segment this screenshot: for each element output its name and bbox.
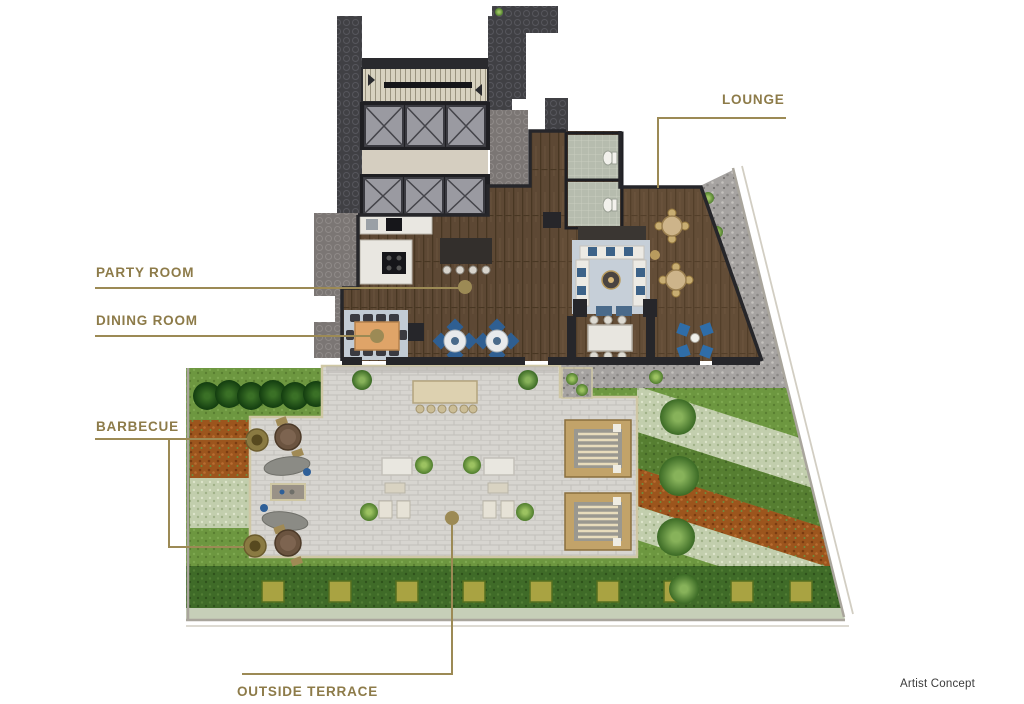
elevator-bank — [360, 102, 490, 150]
toilet — [603, 151, 617, 165]
label-outside-terrace: OUTSIDE TERRACE — [237, 684, 378, 699]
flower-bed — [190, 420, 250, 478]
outside-terrace-callout-dot — [445, 511, 459, 525]
label-party-room: PARTY ROOM — [96, 265, 194, 280]
washrooms — [566, 133, 622, 228]
entry-paving — [490, 110, 528, 186]
cabana — [565, 493, 631, 550]
label-lounge: LOUNGE — [722, 92, 785, 107]
toilet — [603, 198, 617, 212]
banquet-table — [413, 381, 477, 413]
elevator-bank — [360, 174, 490, 218]
core-plant — [495, 8, 503, 16]
terrace-tree — [352, 370, 372, 390]
cabana — [565, 420, 631, 477]
floorplan-canvas: LOUNGE PARTY ROOM DINING ROOM BARBECUE O… — [0, 0, 1024, 704]
kitchen-island — [440, 238, 492, 264]
media-console — [578, 226, 646, 240]
planter-box — [562, 368, 592, 398]
bottom-path — [186, 608, 848, 620]
label-dining-room: DINING ROOM — [96, 313, 198, 328]
bbq-table — [271, 484, 305, 500]
party-room-callout-dot — [458, 280, 472, 294]
gravel-walk — [560, 365, 787, 388]
elevator-lobby — [362, 150, 488, 174]
floorplan-rendering — [0, 0, 1024, 704]
artist-concept-note: Artist Concept — [900, 678, 975, 690]
sage-bed — [190, 478, 250, 528]
terrace-tree — [518, 370, 538, 390]
dining-room-callout-dot — [370, 329, 384, 343]
label-barbecue: BARBECUE — [96, 419, 179, 434]
lounge-dining — [588, 316, 632, 360]
stairs — [362, 68, 488, 102]
